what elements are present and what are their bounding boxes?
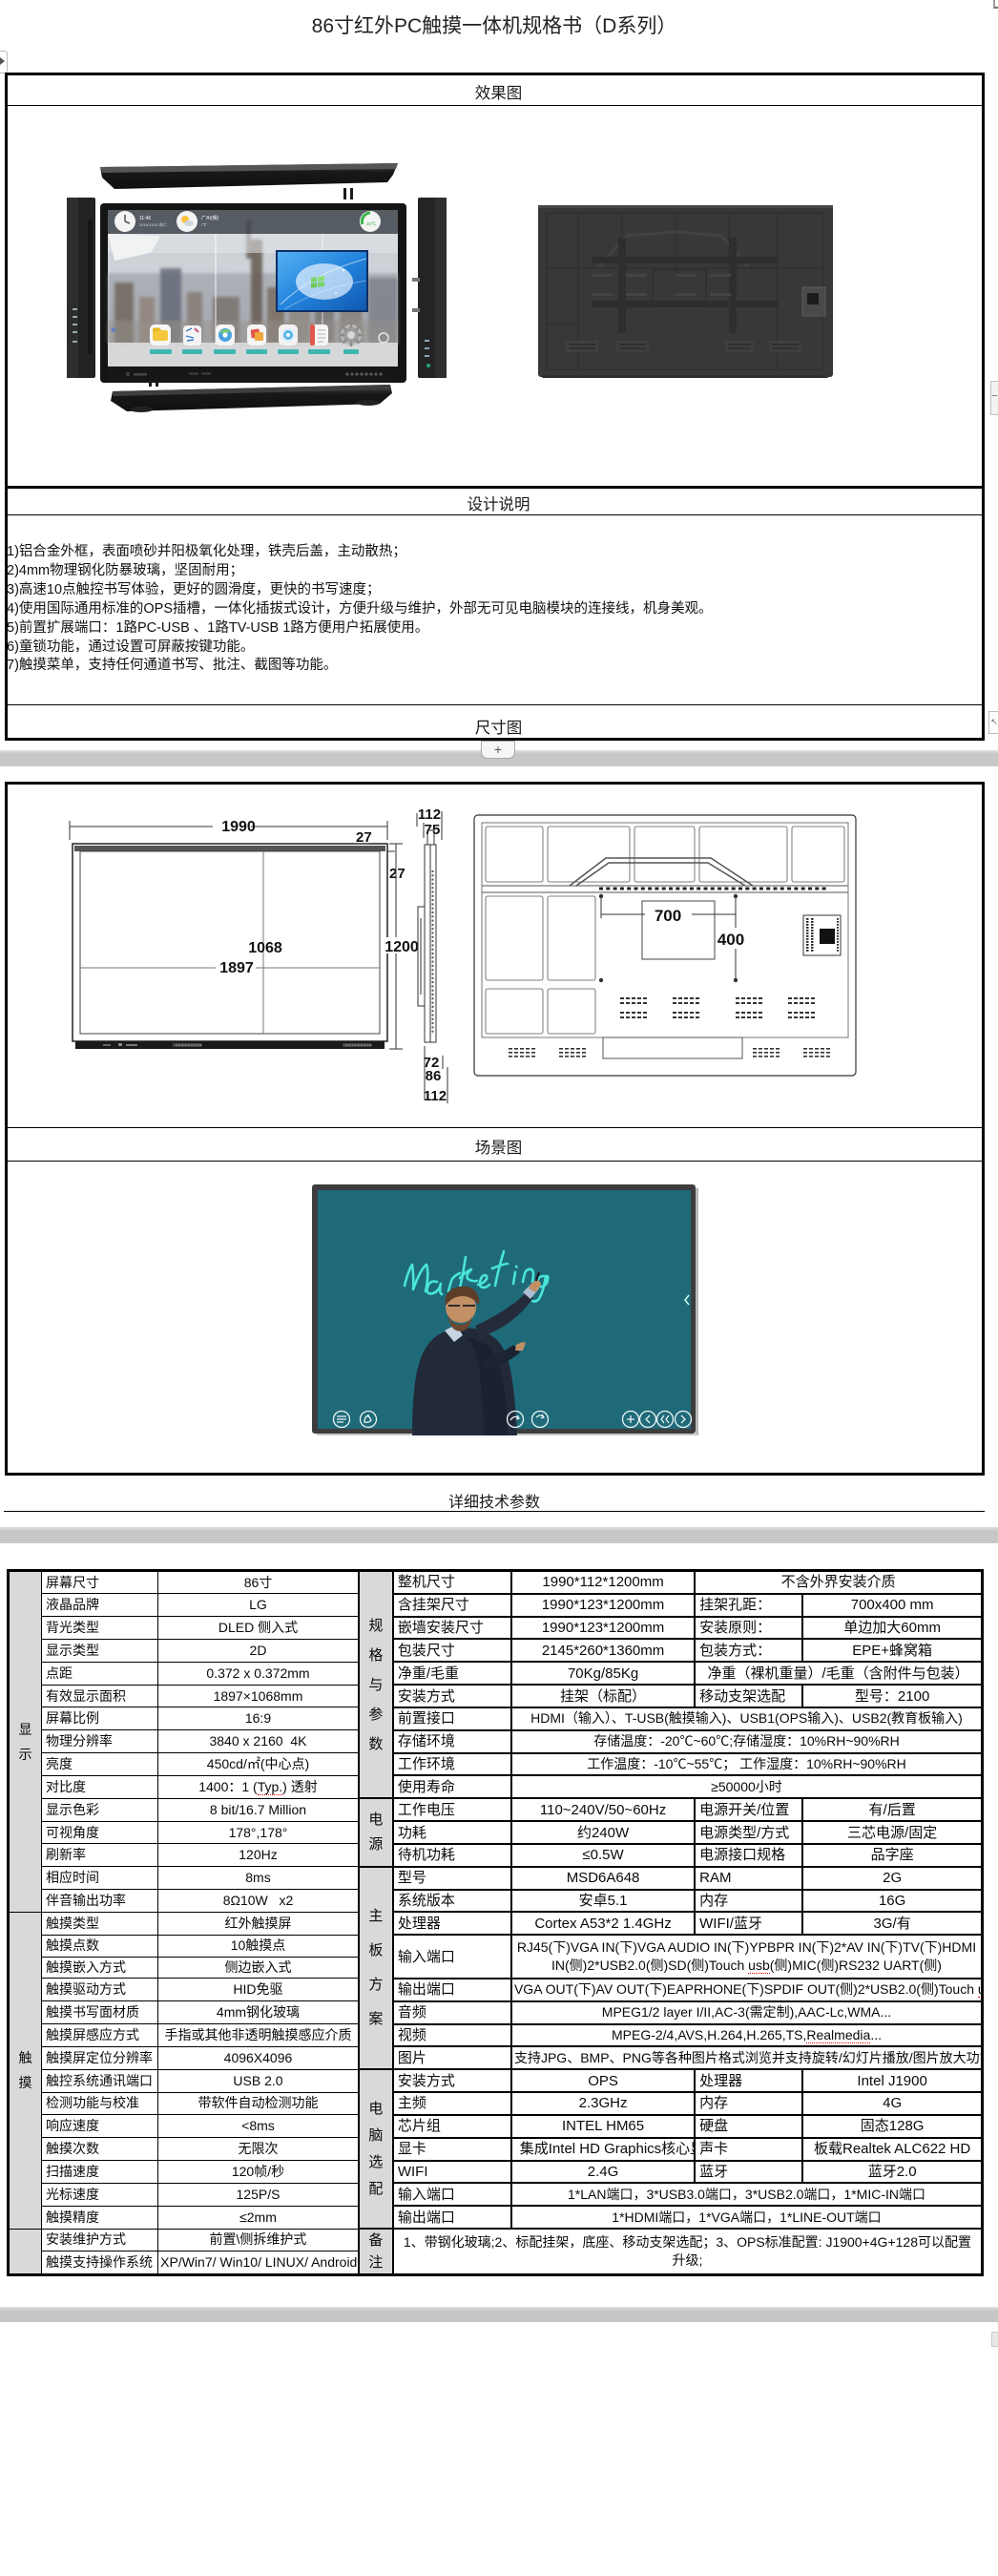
svg-text:27: 27 bbox=[356, 829, 372, 846]
svg-text:86: 86 bbox=[426, 1068, 442, 1084]
svg-text:1897: 1897 bbox=[219, 960, 254, 976]
svg-text:112: 112 bbox=[424, 1088, 447, 1104]
svg-text:35℃: 35℃ bbox=[366, 221, 377, 226]
svg-text:112: 112 bbox=[418, 806, 441, 823]
svg-text:/℃: /℃ bbox=[201, 222, 207, 227]
svg-text:27: 27 bbox=[389, 866, 405, 882]
svg-text:»: » bbox=[111, 325, 116, 335]
svg-text:广州(晴): 广州(晴) bbox=[201, 215, 219, 221]
svg-text:400: 400 bbox=[717, 931, 744, 949]
svg-text:700: 700 bbox=[655, 907, 681, 925]
svg-text:1068: 1068 bbox=[248, 940, 282, 956]
svg-text:1990: 1990 bbox=[221, 819, 256, 835]
svg-text:1200: 1200 bbox=[385, 939, 419, 955]
svg-text:11:46: 11:46 bbox=[139, 216, 151, 221]
svg-text:2019/11/30 周六: 2019/11/30 周六 bbox=[139, 221, 167, 227]
